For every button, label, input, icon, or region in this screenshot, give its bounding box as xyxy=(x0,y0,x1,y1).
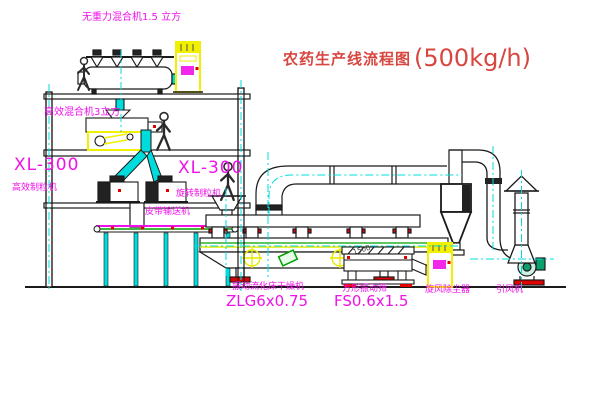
gravity-free-mixer xyxy=(78,50,184,94)
label-fan: 引风机 xyxy=(496,286,523,296)
label-granulator-right-model: XL-300 xyxy=(178,159,243,178)
discharge-chute xyxy=(130,203,144,227)
title-capacity: (500kg/h) xyxy=(414,44,531,72)
cabinet-text-mark xyxy=(181,66,194,75)
label-dryer-model: ZLG6x0.75 xyxy=(226,293,308,310)
label-granulator-left-name: 高效制粒机 xyxy=(12,184,57,194)
title-text: 农药生产线流程图 xyxy=(283,48,411,69)
control-cabinet-lower xyxy=(428,243,452,287)
label-belt-conveyor: 皮带输送机 xyxy=(145,208,190,218)
mixer-top-hoppers xyxy=(91,50,163,67)
label-screen-model: FS0.6x1.5 xyxy=(334,293,408,310)
label-high-efficiency-mixer: 高效混合机3立方 xyxy=(44,107,120,118)
granulator-left xyxy=(96,176,140,202)
label-gravity-mixer: 无重力混合机1.5 立方 xyxy=(82,12,181,23)
label-cyclone: 旋风除尘器 xyxy=(425,286,470,296)
control-cabinet-upper xyxy=(173,42,203,92)
drawing-title: 农药生产线流程图 (500kg/h) xyxy=(283,44,531,72)
process-flow-drawing: 农药生产线流程图 (500kg/h) 无重力混合机1.5 立方 高效混合机3立方… xyxy=(0,0,600,403)
label-granulator-right-name: 旋转制粒机 xyxy=(176,190,221,200)
label-granulator-left-model: XL-300 xyxy=(14,156,79,175)
cabinet-text-mark xyxy=(433,260,446,269)
